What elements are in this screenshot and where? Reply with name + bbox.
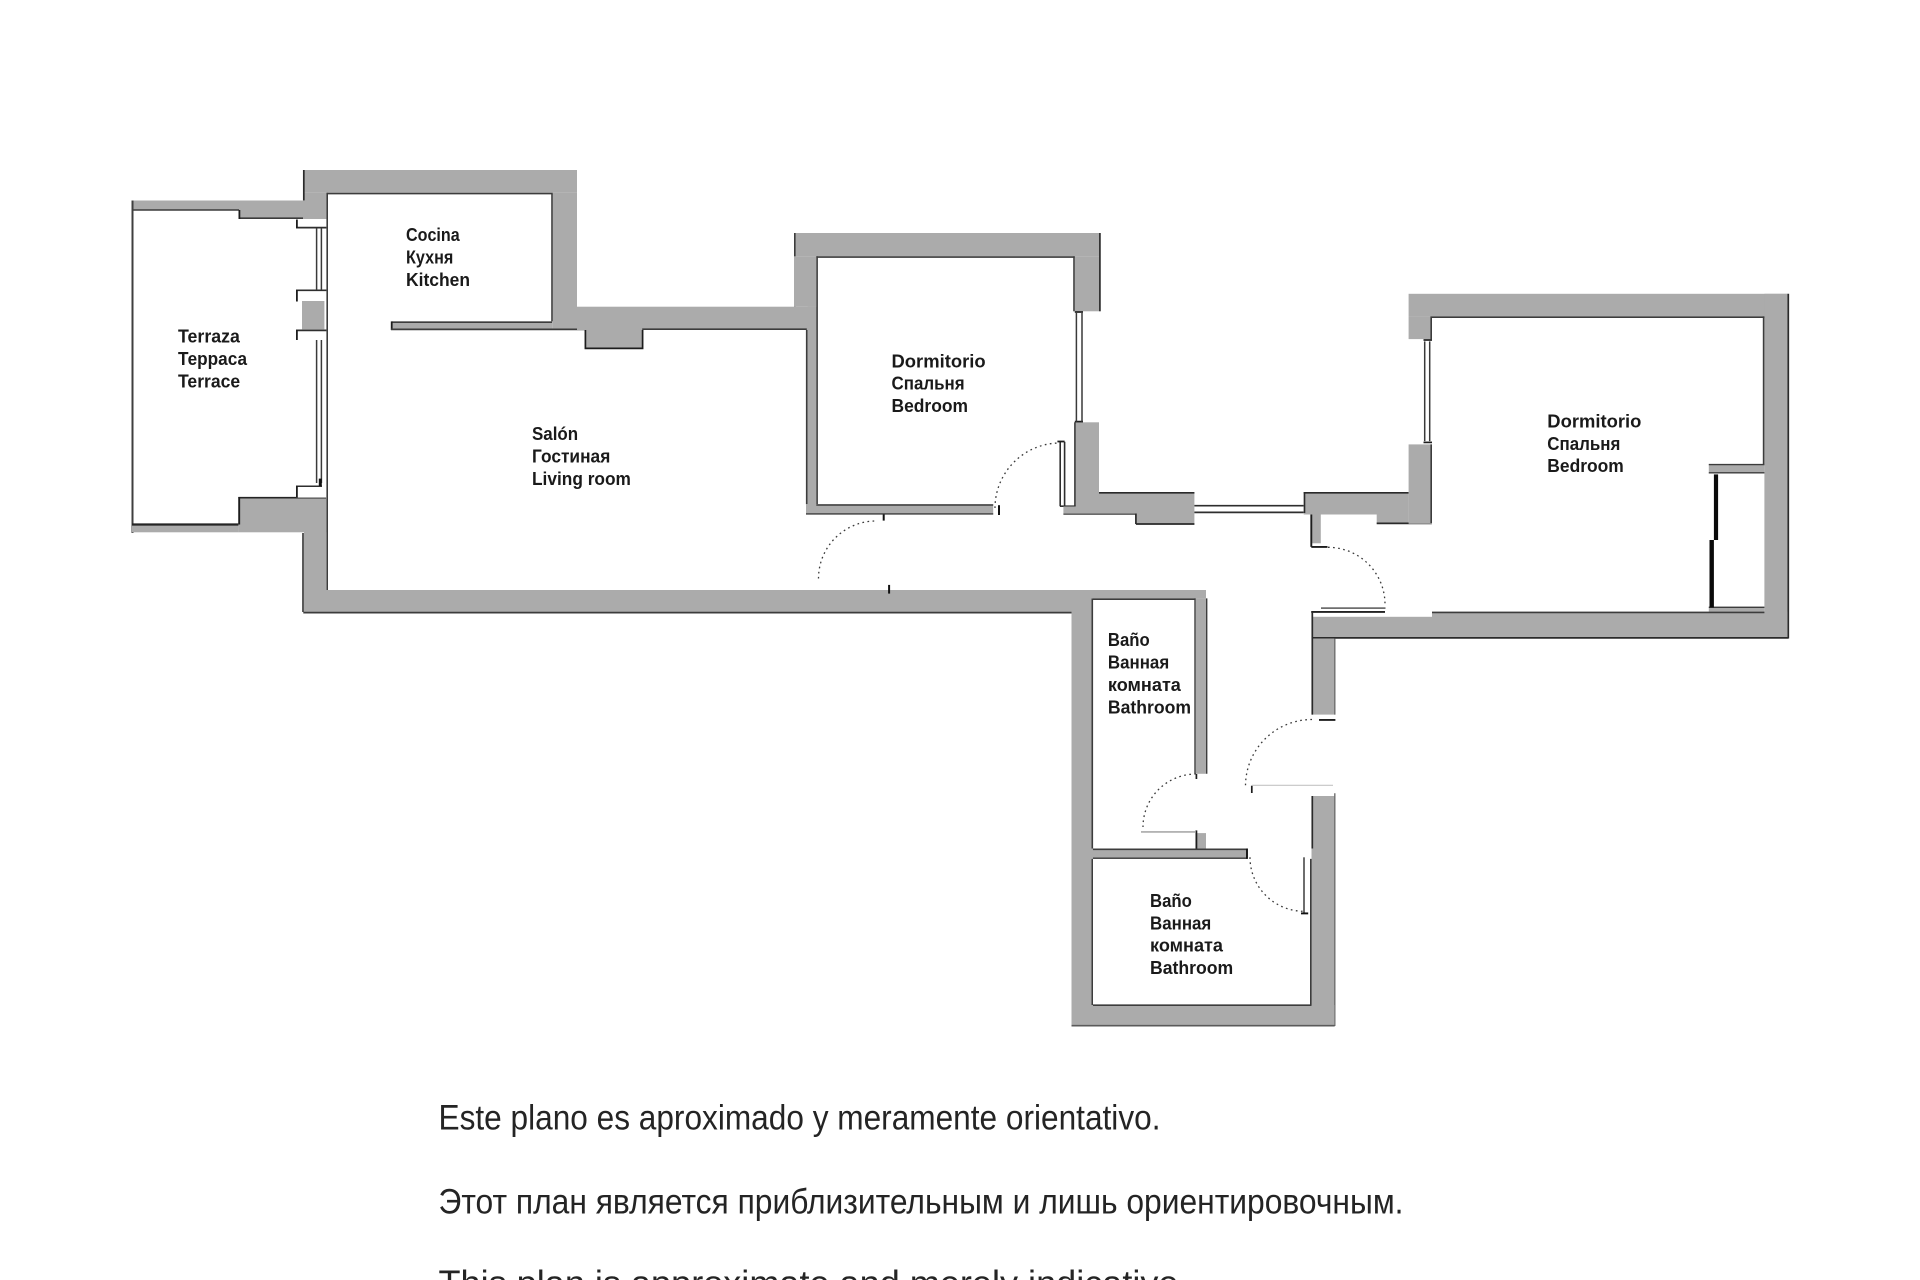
svg-text:Baño: Baño [1150, 891, 1192, 911]
svg-text:Терраса: Терраса [178, 349, 248, 369]
svg-text:Гостиная: Гостиная [532, 447, 610, 467]
svg-text:Cocina: Cocina [406, 225, 461, 245]
svg-text:Dormitorio: Dormitorio [1547, 411, 1641, 431]
svg-text:Кухня: Кухня [406, 248, 453, 268]
svg-text:комната: комната [1150, 936, 1224, 956]
svg-text:Terraza: Terraza [178, 327, 241, 347]
svg-text:Baño: Baño [1108, 630, 1150, 650]
svg-text:Bedroom: Bedroom [1547, 456, 1624, 476]
svg-text:Bathroom: Bathroom [1108, 697, 1191, 717]
svg-text:Bathroom: Bathroom [1150, 958, 1233, 978]
svg-text:Dormitorio: Dormitorio [892, 351, 986, 371]
svg-text:Kitchen: Kitchen [406, 270, 470, 290]
svg-text:Этот план является приблизител: Этот план является приблизительным и лиш… [439, 1183, 1404, 1222]
svg-text:комната: комната [1108, 675, 1182, 695]
svg-text:Este plano es aproximado y mer: Este plano es aproximado y meramente ori… [439, 1099, 1161, 1138]
svg-text:This plan is approximate and m: This plan is approximate and merely indi… [439, 1264, 1189, 1280]
svg-text:Спальня: Спальня [892, 374, 965, 394]
svg-text:Bedroom: Bedroom [892, 396, 969, 416]
svg-text:Salón: Salón [532, 424, 578, 444]
svg-text:Ванная: Ванная [1150, 913, 1211, 933]
svg-text:Terrace: Terrace [178, 371, 240, 391]
svg-text:Спальня: Спальня [1547, 434, 1620, 454]
svg-text:Living room: Living room [532, 469, 631, 489]
svg-text:Ванная: Ванная [1108, 653, 1169, 673]
